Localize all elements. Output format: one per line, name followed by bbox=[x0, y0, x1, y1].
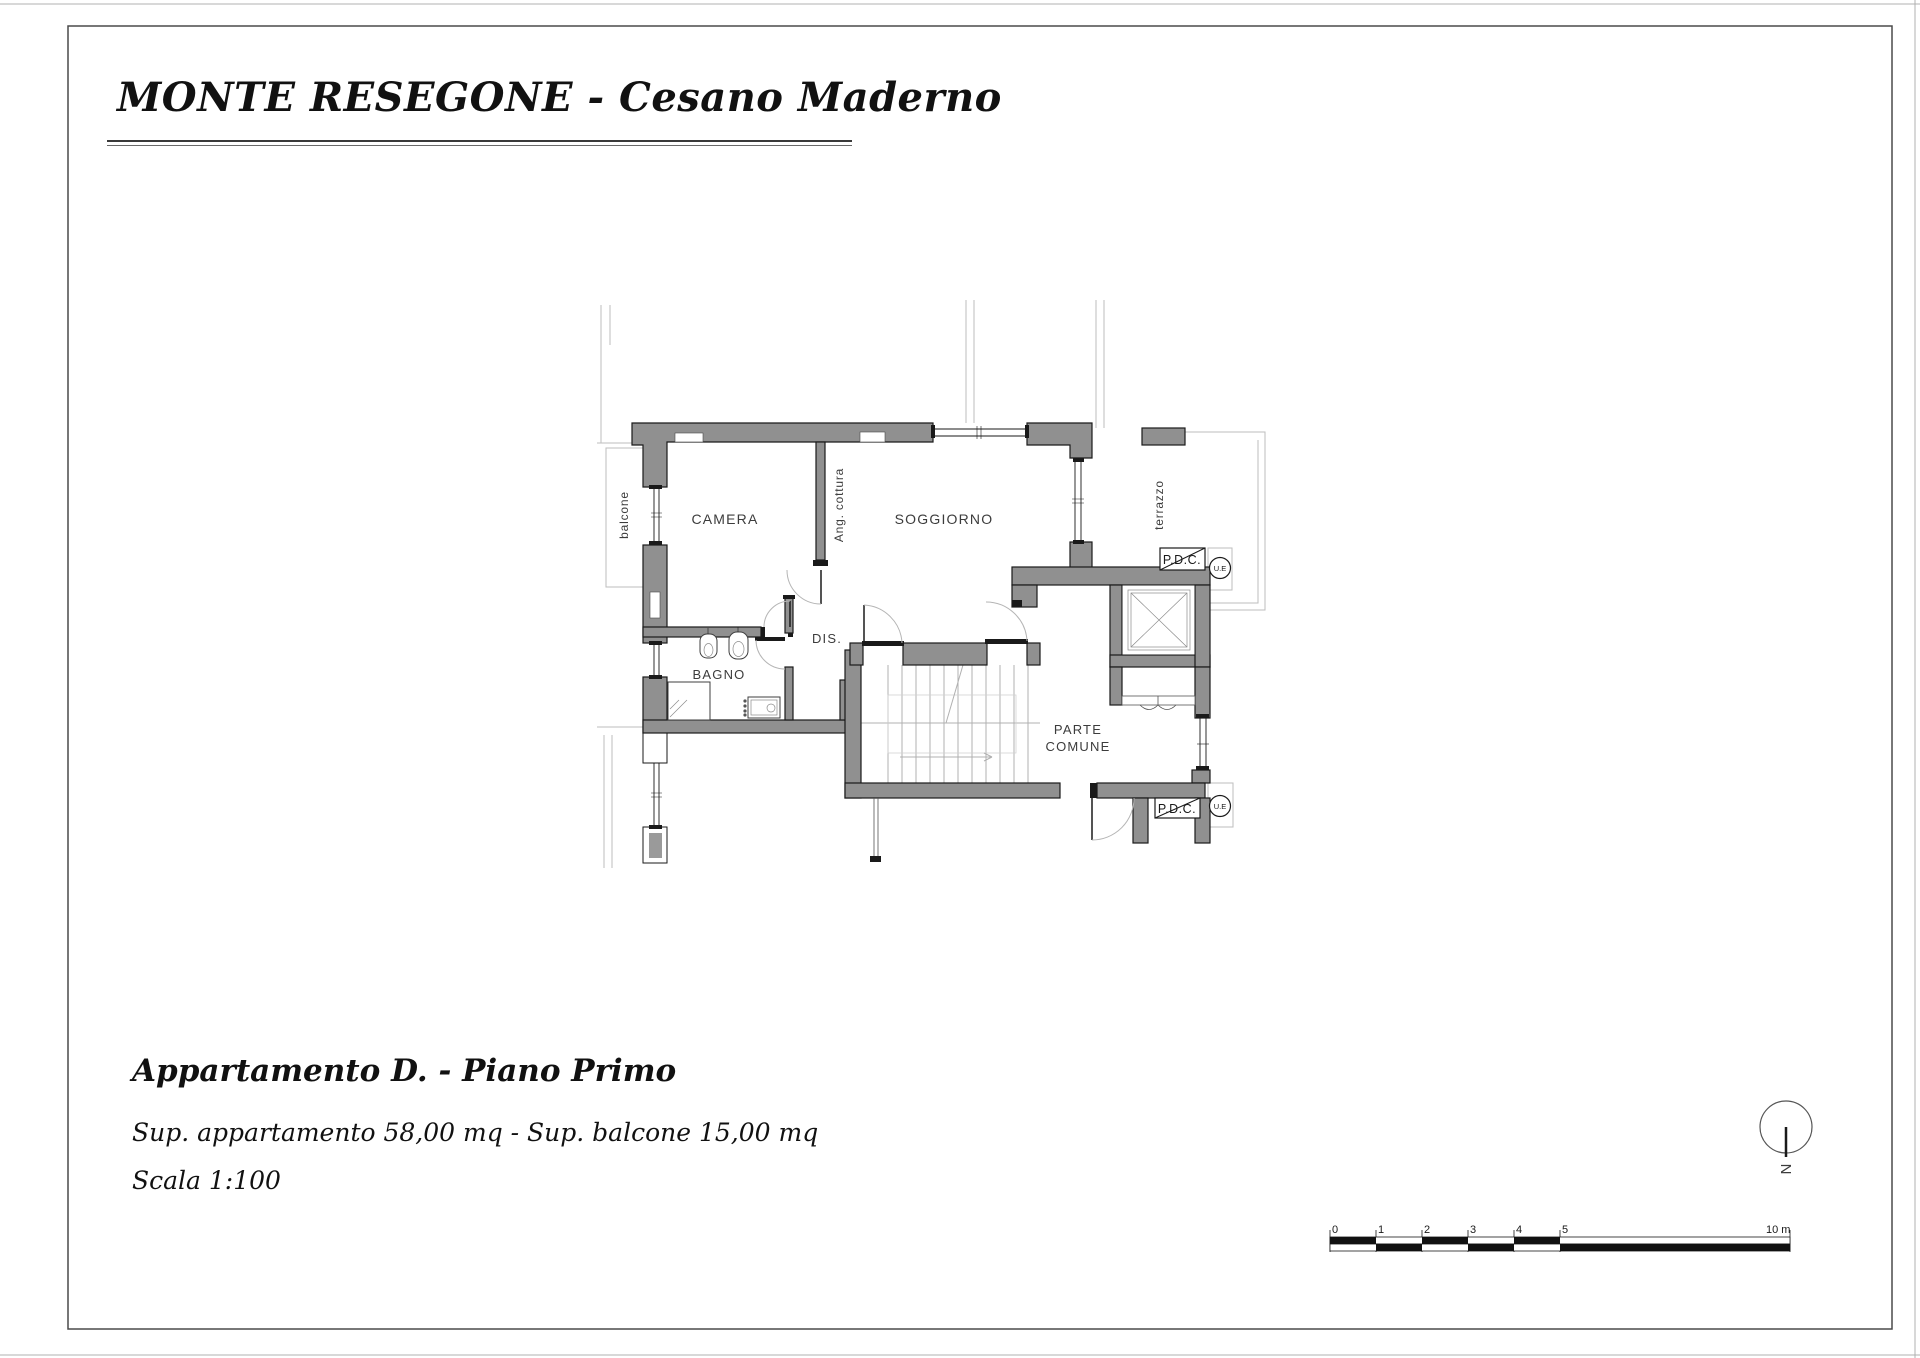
label-ang-cottura: Ang. cottura bbox=[832, 468, 846, 542]
sheet-frame bbox=[0, 0, 1920, 1358]
label-parte-comune-2: COMUNE bbox=[1046, 739, 1111, 754]
bidet-icon bbox=[700, 634, 717, 658]
label-parte-comune-1: PARTE bbox=[1054, 722, 1102, 737]
scale-tick-4: 4 bbox=[1516, 1224, 1522, 1236]
scale-tick-3: 3 bbox=[1470, 1224, 1476, 1236]
scale-end-label: 10 m bbox=[1766, 1224, 1790, 1236]
scale-tick-0: 0 bbox=[1332, 1224, 1338, 1236]
label-terrazzo: terrazzo bbox=[1152, 480, 1166, 530]
pdc-top-label: P.D.C. bbox=[1163, 553, 1201, 567]
pdc-bottom-label: P.D.C. bbox=[1158, 802, 1196, 816]
shower-icon bbox=[668, 682, 710, 720]
scale-tick-1: 1 bbox=[1378, 1224, 1384, 1236]
scale-tick-5: 5 bbox=[1562, 1224, 1568, 1236]
label-camera: CAMERA bbox=[691, 511, 758, 527]
walls bbox=[632, 423, 1210, 863]
ue-top-label: U.E bbox=[1214, 564, 1227, 573]
label-bagno: BAGNO bbox=[693, 667, 746, 682]
wc-icon bbox=[729, 632, 748, 659]
floor-plan-drawing: P.D.C. U.E P.D.C. U.E CAMERA SOGGIORNO D… bbox=[0, 0, 1920, 1358]
ue-bottom-label: U.E bbox=[1214, 802, 1227, 811]
label-balcone: balcone bbox=[617, 491, 631, 539]
north-indicator: N bbox=[1760, 1101, 1812, 1174]
drawing-sheet: MONTE RESEGONE - Cesano Maderno Appartam… bbox=[0, 0, 1920, 1358]
scale-bar: 0 1 2 3 4 5 10 m bbox=[1330, 1224, 1790, 1252]
label-soggiorno: SOGGIORNO bbox=[895, 511, 994, 527]
stairs bbox=[861, 665, 1040, 783]
label-dis: DIS. bbox=[812, 631, 842, 646]
north-letter: N bbox=[1777, 1164, 1794, 1175]
scale-tick-2: 2 bbox=[1424, 1224, 1430, 1236]
